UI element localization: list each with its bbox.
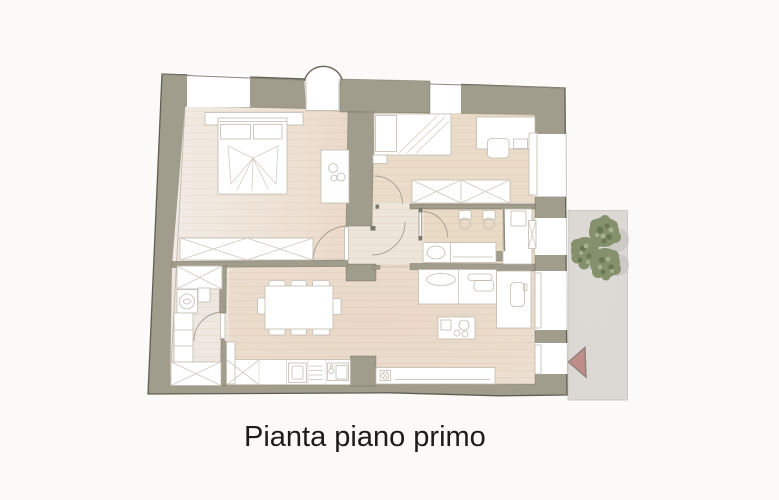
svg-text:Pianta piano primo: Pianta piano primo [244,421,486,453]
